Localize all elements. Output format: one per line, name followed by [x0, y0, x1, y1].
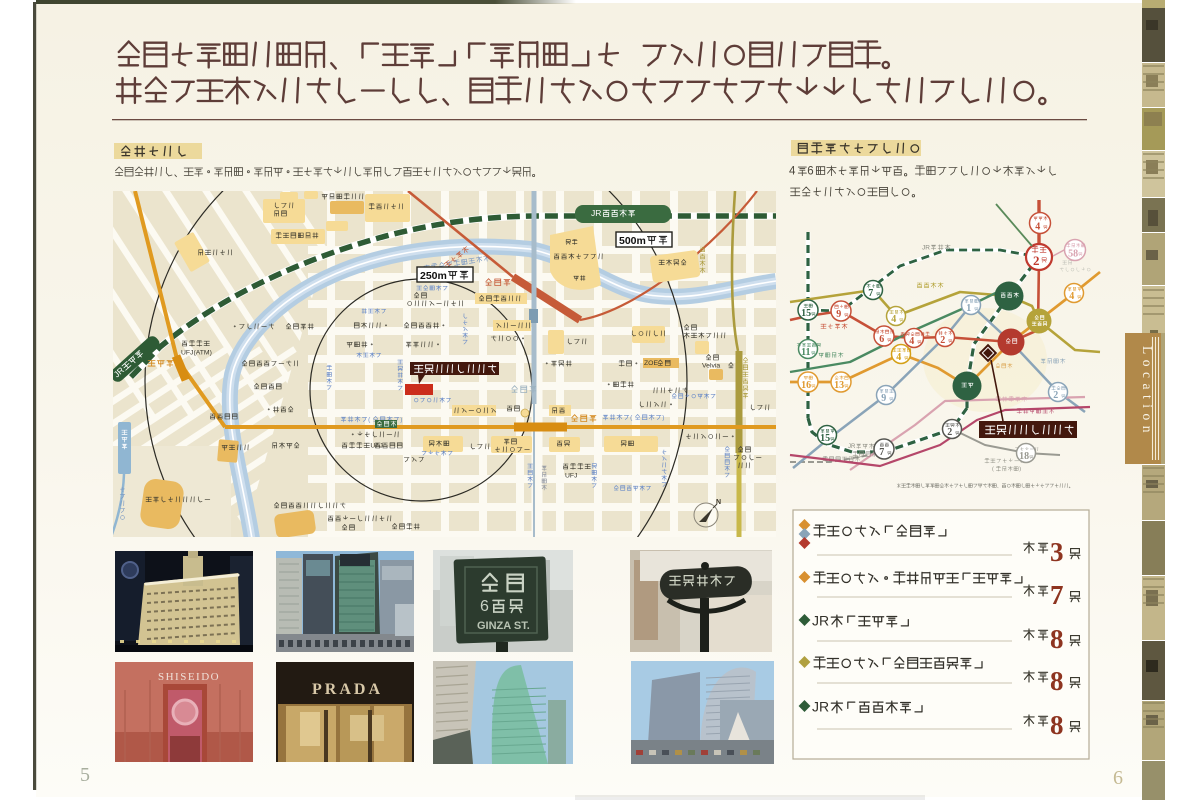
svg-text:Location: Location: [1140, 346, 1155, 438]
svg-text:9: 9: [836, 309, 841, 320]
svg-text:6: 6: [480, 598, 489, 615]
svg-text:7: 7: [868, 288, 873, 299]
svg-text:2: 2: [947, 427, 952, 438]
svg-text:7: 7: [879, 447, 884, 458]
svg-text:PRADA: PRADA: [312, 681, 383, 698]
svg-text:9: 9: [881, 393, 886, 404]
svg-text:(: (: [992, 467, 994, 473]
svg-text:15: 15: [801, 308, 811, 319]
svg-text:1: 1: [966, 303, 971, 314]
svg-text:Velvia: Velvia: [702, 363, 720, 370]
svg-text:UFJ: UFJ: [565, 473, 577, 480]
svg-text:JR: JR: [812, 699, 829, 715]
svg-text:JR: JR: [591, 208, 601, 218]
svg-text:3: 3: [1050, 537, 1064, 567]
svg-text:7: 7: [1050, 580, 1064, 610]
svg-text:15: 15: [820, 433, 830, 444]
svg-text:8: 8: [1050, 710, 1064, 740]
svg-text:2: 2: [1053, 390, 1058, 401]
svg-text:6: 6: [1113, 767, 1123, 789]
svg-text:JR: JR: [922, 244, 930, 251]
svg-text:): ): [662, 414, 664, 421]
svg-text:ZOE: ZOE: [644, 360, 658, 367]
svg-text:2: 2: [940, 335, 945, 346]
svg-text:): ): [1019, 467, 1021, 473]
svg-text:4: 4: [1069, 291, 1074, 302]
svg-text:58: 58: [1068, 249, 1078, 260]
svg-text:500m: 500m: [619, 235, 646, 247]
svg-text:6: 6: [879, 334, 884, 345]
svg-text:JR: JR: [812, 613, 829, 629]
svg-text:4: 4: [909, 336, 914, 347]
svg-text:8: 8: [1050, 624, 1064, 654]
svg-text:11: 11: [801, 347, 810, 358]
svg-text:JR: JR: [848, 444, 856, 450]
svg-text:GINZA ST.: GINZA ST.: [477, 620, 530, 632]
svg-text:5: 5: [80, 764, 90, 786]
svg-text:250m: 250m: [420, 270, 447, 282]
svg-text:UFJ(ATM): UFJ(ATM): [181, 350, 212, 357]
svg-text:13: 13: [834, 380, 844, 391]
svg-text:4: 4: [891, 314, 896, 325]
svg-text:18: 18: [1019, 451, 1029, 462]
svg-text:8: 8: [1050, 666, 1064, 696]
svg-text:SHISEIDO: SHISEIDO: [158, 671, 220, 683]
svg-text:4: 4: [896, 352, 901, 363]
svg-text:6: 6: [807, 165, 813, 177]
svg-text:): ): [400, 416, 402, 423]
svg-text:2: 2: [1033, 253, 1040, 268]
svg-text:N: N: [716, 499, 721, 506]
svg-text:16: 16: [801, 380, 811, 391]
svg-text:4: 4: [789, 165, 796, 177]
svg-text:4: 4: [1035, 222, 1040, 233]
